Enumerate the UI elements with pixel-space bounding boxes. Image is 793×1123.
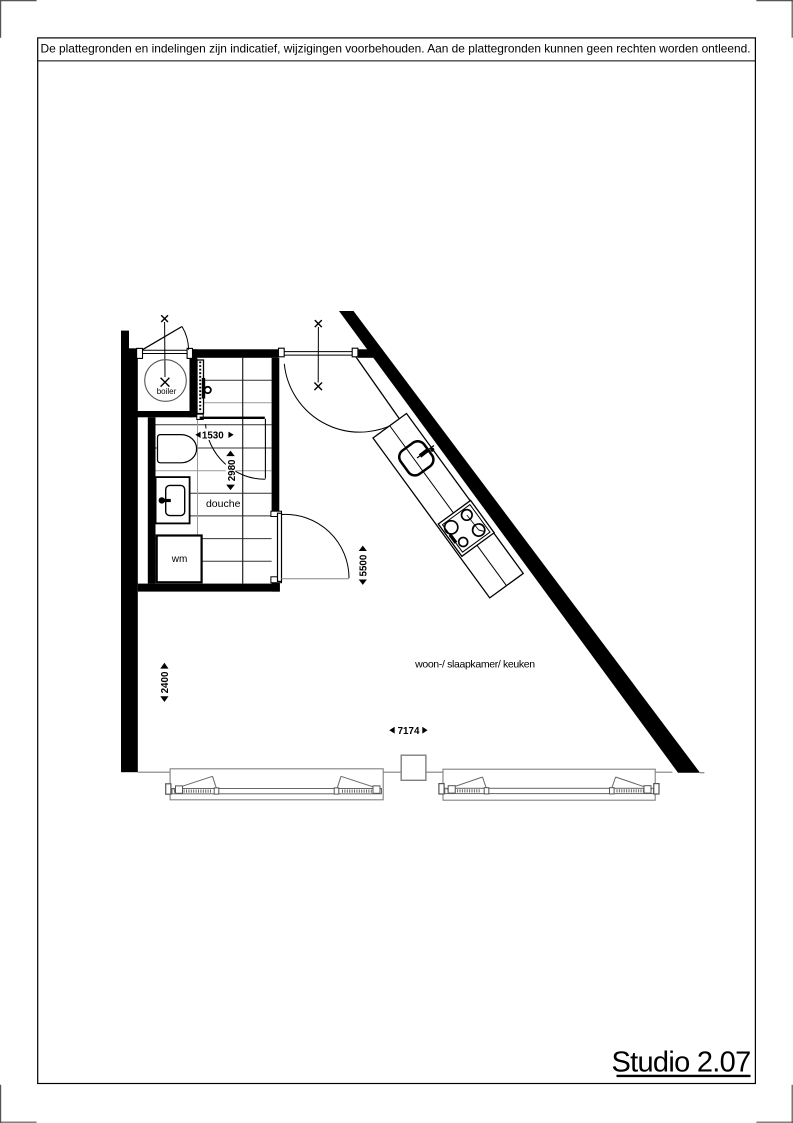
svg-text:Studio 2.07: Studio 2.07 (611, 1047, 750, 1079)
svg-text:1530: 1530 (202, 431, 224, 442)
svg-text:5500: 5500 (358, 554, 369, 576)
svg-text:wm: wm (171, 554, 188, 565)
svg-text:douche: douche (206, 498, 241, 510)
svg-text:boiler: boiler (157, 387, 177, 396)
svg-text:2400: 2400 (160, 671, 171, 693)
svg-text:woon-/ slaapkamer/ keuken: woon-/ slaapkamer/ keuken (414, 659, 535, 671)
svg-text:De plattegronden en indelingen: De plattegronden en indelingen zijn indi… (41, 42, 751, 56)
svg-text:2980: 2980 (227, 459, 238, 481)
svg-text:7174: 7174 (398, 726, 420, 737)
